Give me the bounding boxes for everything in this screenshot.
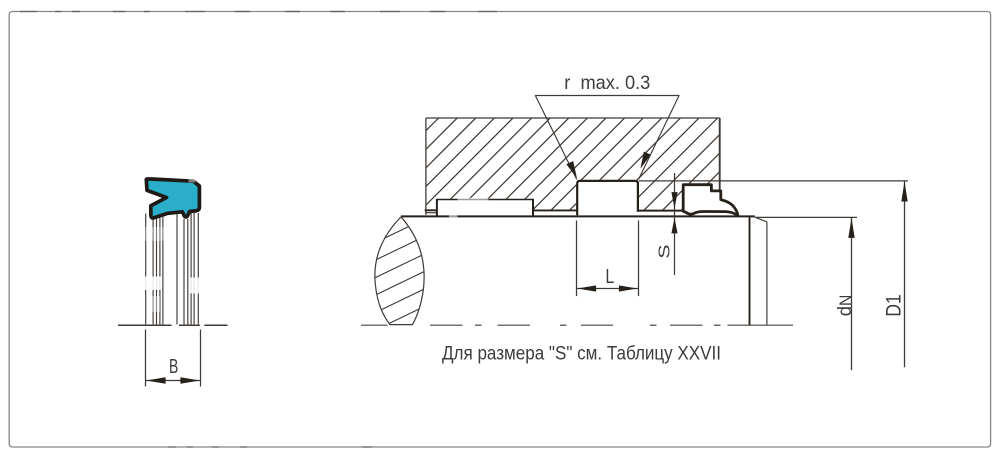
svg-text:dN: dN	[835, 295, 857, 317]
svg-text:L: L	[605, 266, 614, 288]
svg-text:Для размера "S" см. Таблицу XX: Для размера "S" см. Таблицу XXVII	[442, 344, 721, 365]
svg-text:r max. 0.3: r max. 0.3	[564, 72, 650, 94]
svg-text:D1: D1	[883, 294, 906, 316]
svg-text:S: S	[655, 244, 672, 258]
svg-text:B: B	[169, 354, 178, 377]
